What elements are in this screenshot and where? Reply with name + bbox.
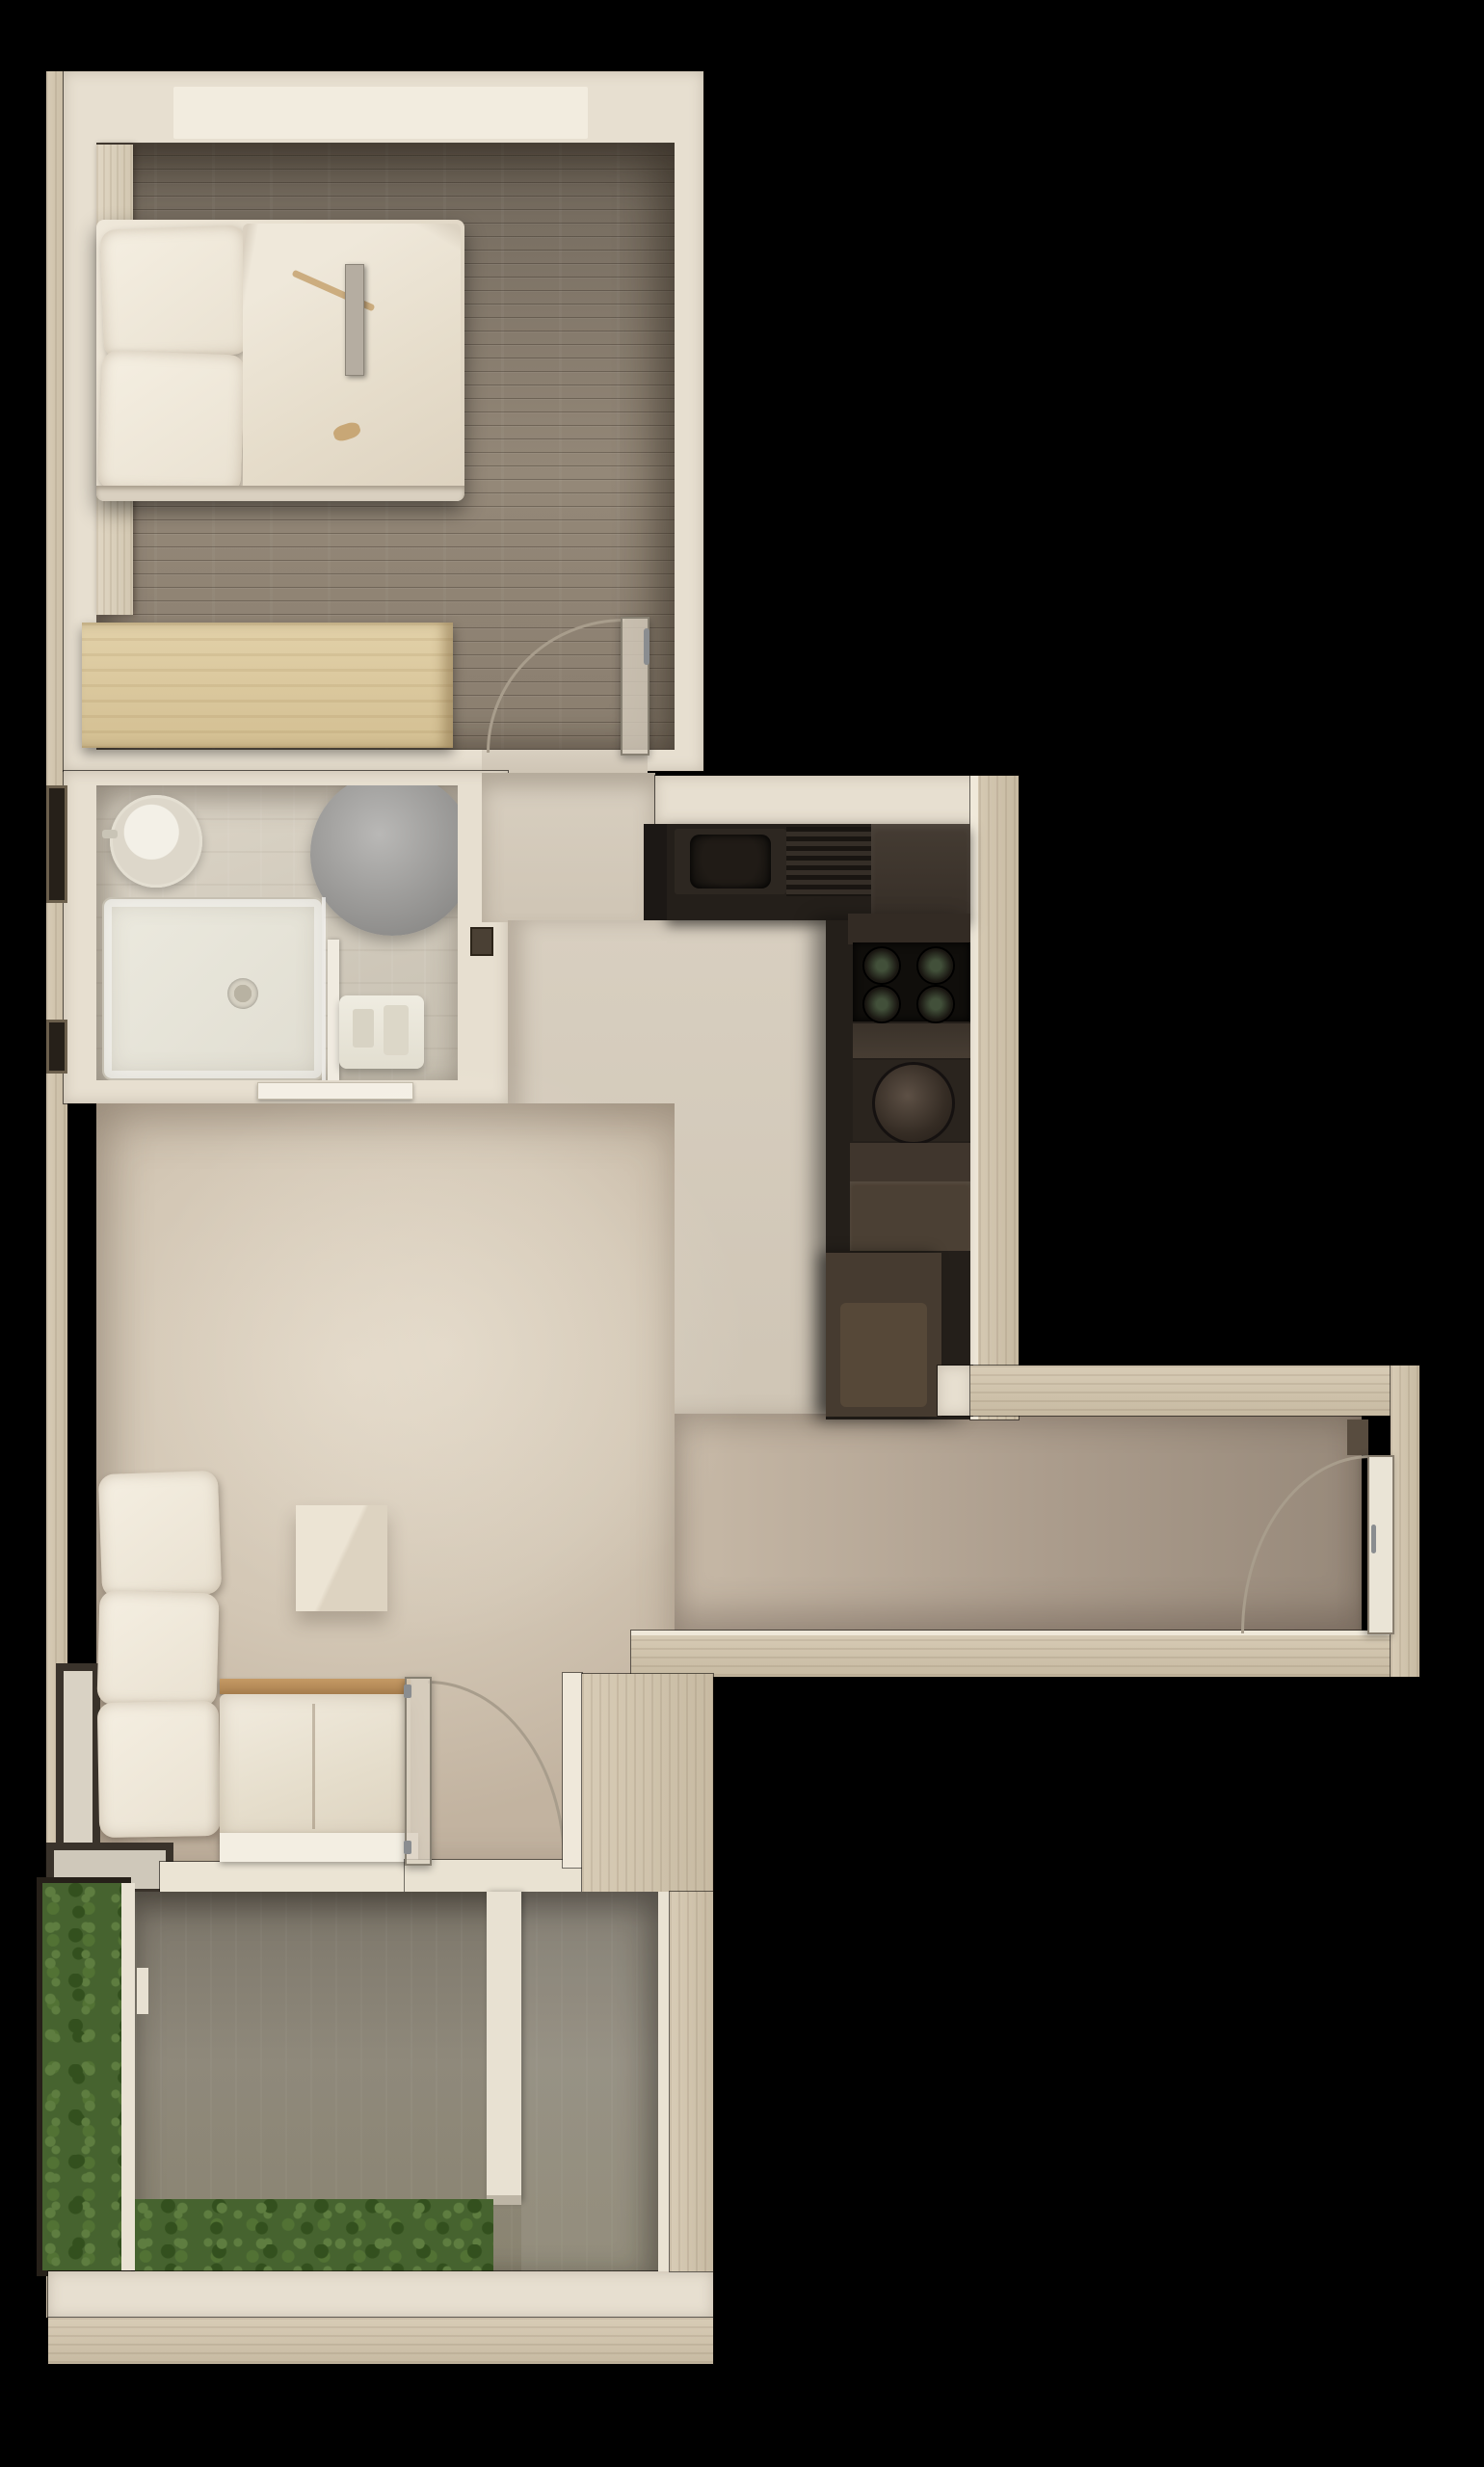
kitchen-end-panel [644, 824, 667, 920]
bed-pillow-bottom [98, 350, 246, 493]
hedge-left [42, 1883, 121, 2270]
kitchen-corner-counter [871, 824, 970, 920]
bedroom-bench [82, 623, 453, 748]
bedroom-door-handle [644, 628, 649, 665]
bed-pillow-top [100, 225, 250, 358]
corridor-right-wall [1391, 1366, 1419, 1677]
left-wall-window-small [46, 1020, 67, 1074]
window-frame-behind-sofa [56, 1663, 100, 1868]
wall-block-right-of-balcony-door [582, 1674, 713, 1892]
balcony-divider [487, 1892, 521, 2202]
shower-dome [310, 785, 458, 936]
entrance-door-leaf [1367, 1455, 1394, 1634]
burner-icon [862, 985, 901, 1023]
kitchen-drainer-grooves [786, 827, 871, 896]
balcony-door-handle [404, 1841, 411, 1854]
sofa-back-pillow-2 [96, 1590, 219, 1707]
planter-rail-left [121, 1883, 135, 2270]
kitchen-sink-frame [675, 829, 786, 894]
bathroom-wall-vent [470, 927, 493, 956]
burner-icon [916, 946, 955, 985]
light-pool [135, 1050, 752, 1648]
sofa-back-pillow-1 [98, 1471, 222, 1598]
shower-drain [227, 978, 258, 1009]
window-glass [64, 1671, 93, 1860]
entrance-door-handle [1371, 1525, 1376, 1553]
washbasin [110, 795, 202, 888]
bathroom-floor [96, 785, 458, 1080]
sofa-seat [220, 1694, 411, 1839]
entrance-door-hinge [1347, 1419, 1368, 1455]
kitchen-worktop [848, 914, 970, 944]
balcony-bottom-siding [48, 2318, 713, 2364]
kitchen-sink-basin [690, 835, 771, 889]
balcony-floor-right-light [521, 1892, 658, 2271]
toilet-lid [384, 1005, 409, 1055]
toilet-cistern-buttons [353, 1009, 374, 1048]
corridor-top-wall [970, 1366, 1391, 1416]
left-wall-window-bathroom [46, 785, 67, 903]
balcony-right-wall [670, 1892, 713, 2271]
kitchen-back-wall-highlight [970, 776, 978, 1419]
floorplan-render [0, 0, 1484, 2467]
burner-icon [862, 946, 901, 985]
bedroom-top-wall-panel [173, 87, 588, 139]
oven-bowl [872, 1062, 955, 1145]
balcony-door-leaf [405, 1677, 432, 1866]
cabinet-front [850, 1181, 970, 1251]
bed-footboard [96, 486, 464, 501]
end-cabinet-front [840, 1303, 927, 1407]
kitchen-mid-module [853, 1023, 970, 1058]
oven-module [853, 1060, 970, 1141]
balcony-right-wall-edge [658, 1892, 670, 2271]
burner-icon [916, 985, 955, 1023]
balcony-door-handle [404, 1684, 411, 1698]
kitchen-top-wall [655, 776, 1019, 824]
balcony-latch [137, 1968, 148, 2014]
balcony-door-post [563, 1673, 582, 1868]
washbasin-faucet [102, 830, 118, 838]
hedge-bottom [135, 2199, 493, 2274]
sofa-seat-seam [312, 1704, 315, 1829]
balcony-bottom-wall [48, 2271, 713, 2318]
sofa-front-ledge [220, 1833, 418, 1862]
nightstand-rail [345, 264, 364, 376]
bed [96, 220, 464, 501]
bedroom-door-leaf [621, 617, 649, 756]
corridor-wall-block [938, 1366, 972, 1416]
corridor-bottom-wall [631, 1631, 1417, 1677]
cube-table [296, 1505, 387, 1611]
kitchen-end-cabinet [826, 1253, 941, 1417]
kitchen-base-cabinet [850, 1143, 970, 1251]
sofa-back-pillow-3 [97, 1701, 221, 1838]
hall-floor [482, 773, 655, 922]
cooktop [853, 942, 970, 1021]
sofa-wood-rail [220, 1679, 411, 1694]
